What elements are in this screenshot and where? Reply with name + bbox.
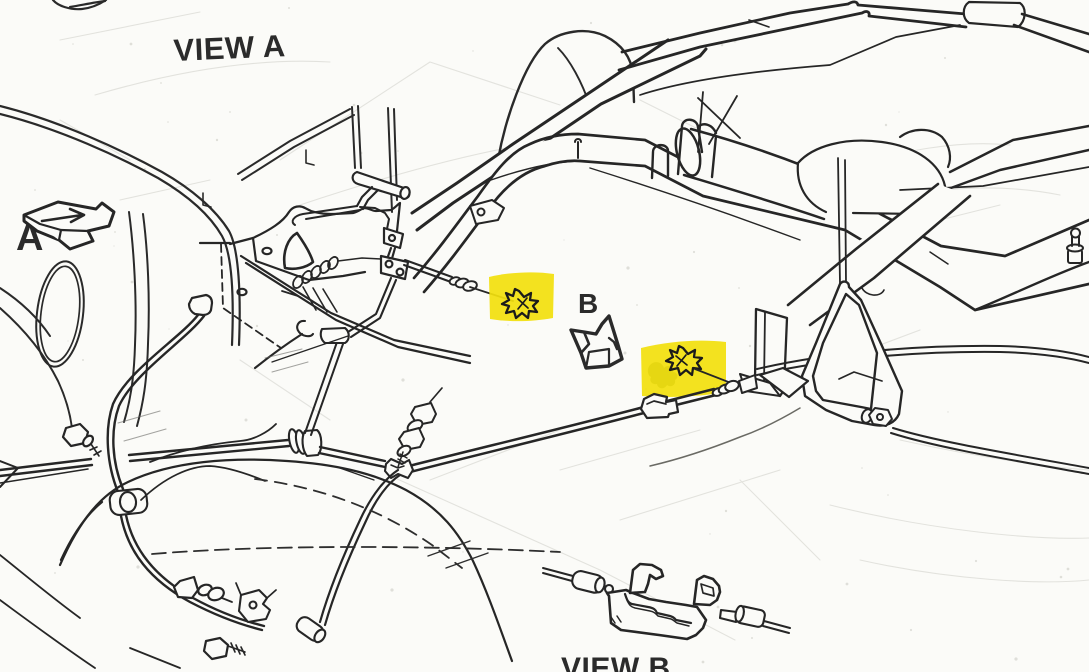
svg-text:VIEW B: VIEW B [561,652,671,672]
svg-text:B: B [578,288,598,319]
svg-text:VIEW A: VIEW A [173,28,286,68]
